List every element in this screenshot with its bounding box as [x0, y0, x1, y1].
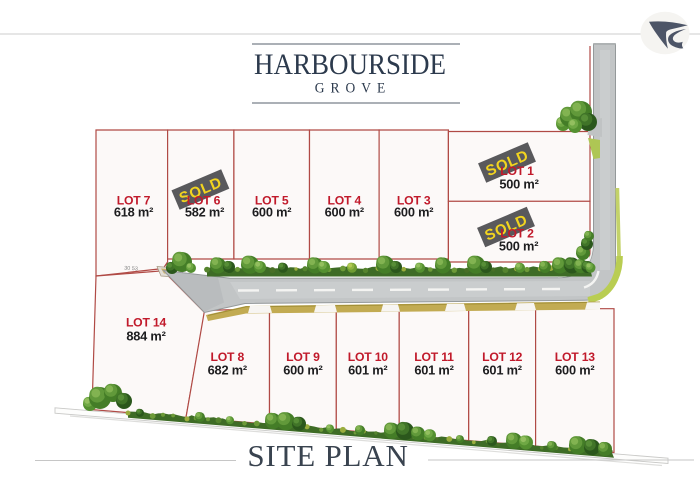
svg-text:GROVE: GROVE	[315, 80, 391, 97]
svg-text:500 m²: 500 m²	[499, 239, 538, 254]
svg-text:600 m²: 600 m²	[325, 205, 364, 220]
svg-text:500 m²: 500 m²	[499, 177, 538, 192]
svg-text:30 53: 30 53	[124, 266, 138, 273]
svg-text:682 m²: 682 m²	[208, 363, 247, 378]
svg-text:LOT 14: LOT 14	[126, 316, 167, 330]
svg-text:618 m²: 618 m²	[114, 205, 153, 220]
svg-text:600 m²: 600 m²	[283, 363, 322, 378]
svg-text:600 m²: 600 m²	[555, 363, 594, 378]
svg-text:HARBOURSIDE: HARBOURSIDE	[254, 49, 446, 81]
svg-text:SITE PLAN: SITE PLAN	[247, 438, 408, 473]
svg-text:600 m²: 600 m²	[252, 205, 291, 220]
svg-text:601 m²: 601 m²	[414, 363, 453, 378]
svg-text:600 m²: 600 m²	[394, 205, 433, 220]
svg-text:582 m²: 582 m²	[185, 205, 224, 220]
svg-text:601 m²: 601 m²	[348, 363, 387, 378]
svg-text:884 m²: 884 m²	[126, 329, 165, 344]
svg-text:601 m²: 601 m²	[483, 363, 522, 378]
